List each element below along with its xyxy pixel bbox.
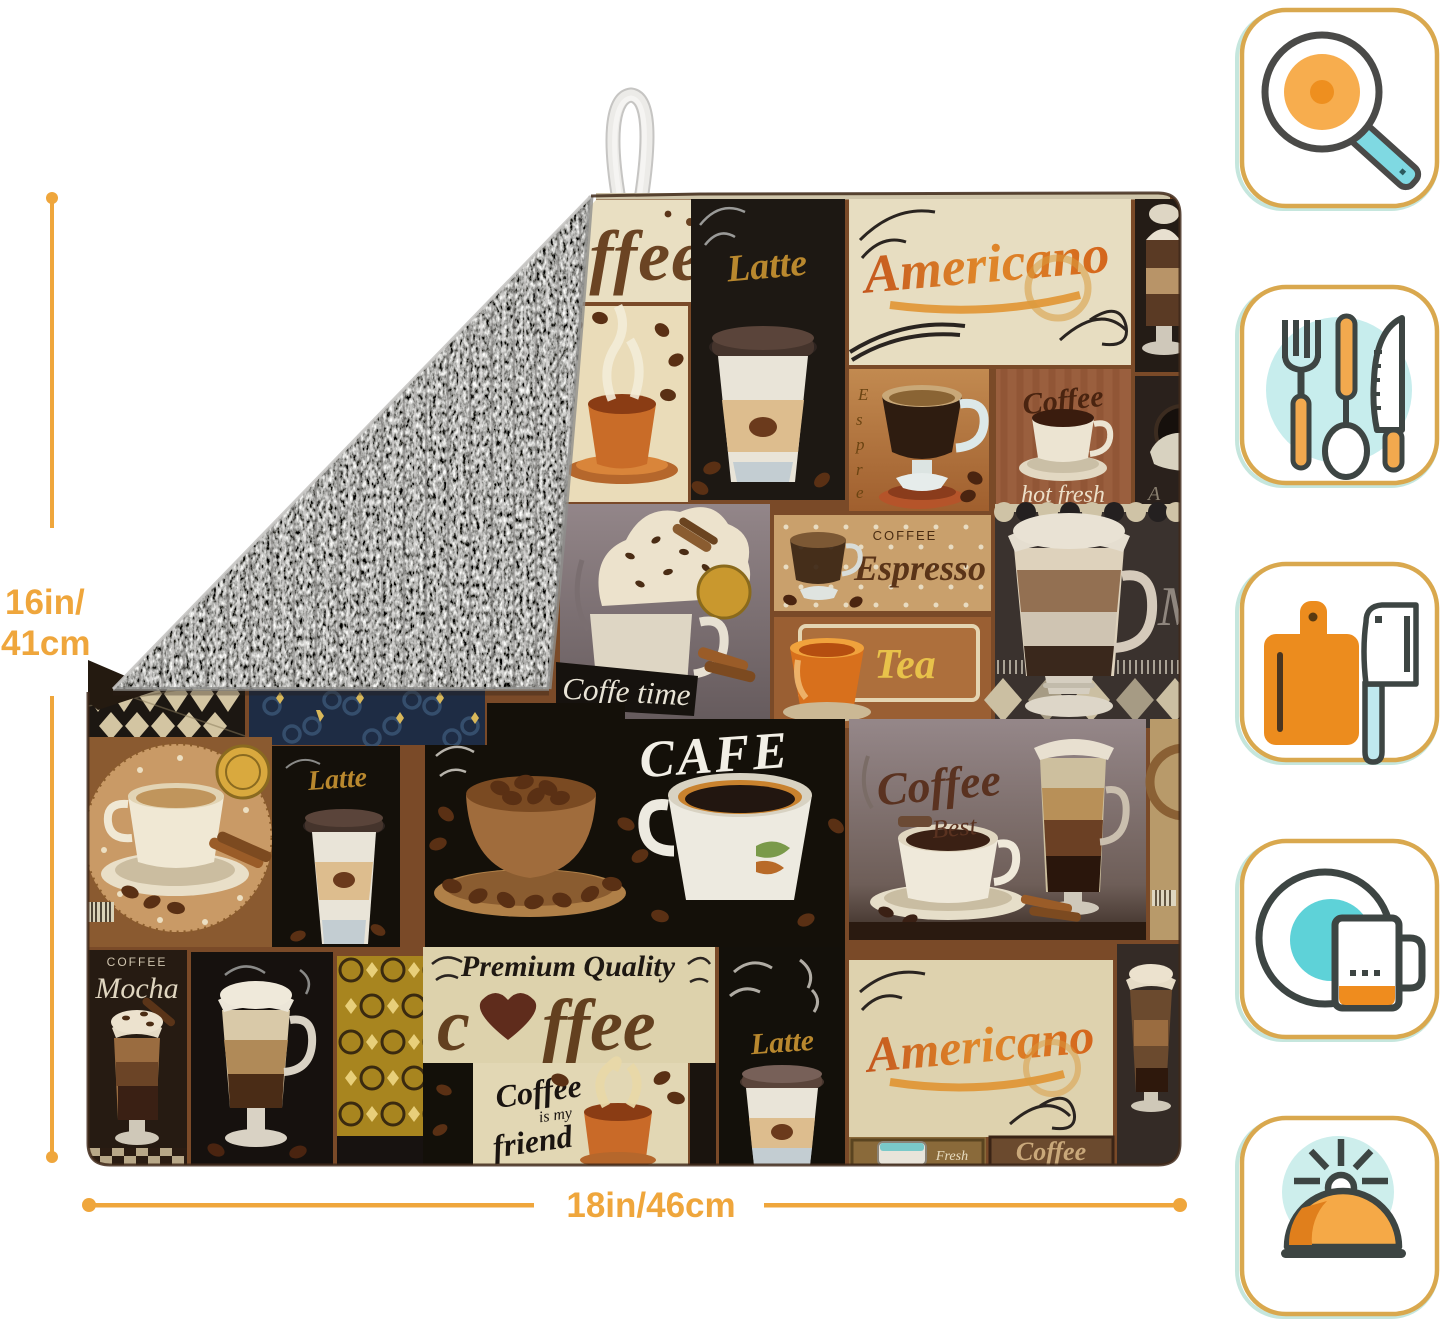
svg-text:r: r <box>856 460 863 479</box>
svg-text:Latte: Latte <box>749 1024 815 1061</box>
svg-text:Espresso: Espresso <box>853 548 986 588</box>
svg-text:41cm: 41cm <box>1 624 91 663</box>
svg-text:s: s <box>856 410 863 429</box>
svg-text:COFFEE: COFFEE <box>873 528 938 543</box>
svg-text:E: E <box>857 385 869 404</box>
svg-text:18in/46cm: 18in/46cm <box>566 1186 735 1225</box>
svg-text:Coffee: Coffee <box>874 754 1002 816</box>
svg-text:Fresh: Fresh <box>935 1149 968 1164</box>
svg-text:A: A <box>1146 483 1161 505</box>
svg-text:Coffee: Coffee <box>1016 1137 1086 1166</box>
svg-text:16in/: 16in/ <box>5 583 85 622</box>
svg-text:p: p <box>855 435 865 454</box>
svg-text:Best: Best <box>931 811 979 844</box>
svg-text:Premium Quality: Premium Quality <box>460 950 676 983</box>
svg-text:ffee: ffee <box>542 985 656 1067</box>
svg-text:c: c <box>437 985 470 1067</box>
svg-text:COFFEE: COFFEE <box>107 955 168 969</box>
svg-text:Tea: Tea <box>874 642 935 688</box>
svg-text:Latte: Latte <box>306 762 368 797</box>
svg-text:Latte: Latte <box>724 242 809 291</box>
svg-text:Mocha: Mocha <box>94 972 178 1005</box>
svg-text:e: e <box>856 483 864 502</box>
